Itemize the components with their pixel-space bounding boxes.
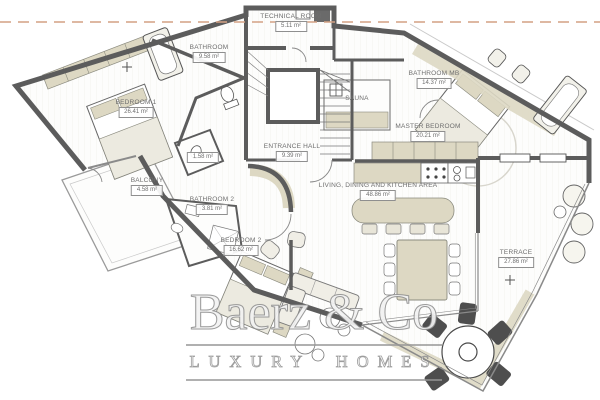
sauna-room xyxy=(324,80,390,130)
floor-plan-drawing xyxy=(0,0,600,400)
floor-plan-page: TECHNICAL ROOM 5.11 m² BATHROOM 9.58 m² … xyxy=(0,0,600,400)
